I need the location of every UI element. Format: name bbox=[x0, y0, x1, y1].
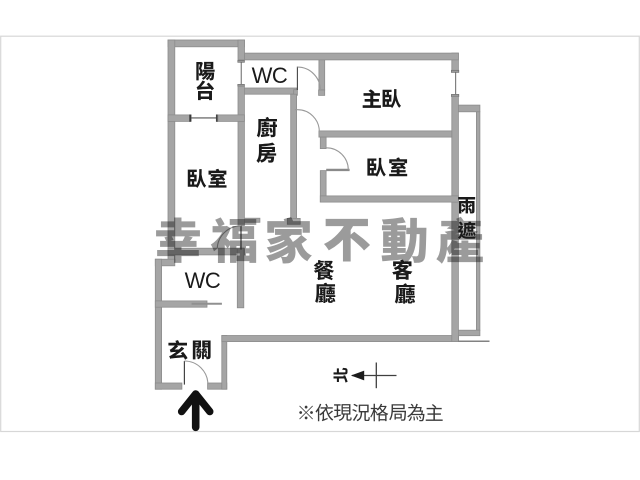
svg-text:WC: WC bbox=[252, 63, 288, 88]
svg-text:WC: WC bbox=[185, 268, 221, 293]
